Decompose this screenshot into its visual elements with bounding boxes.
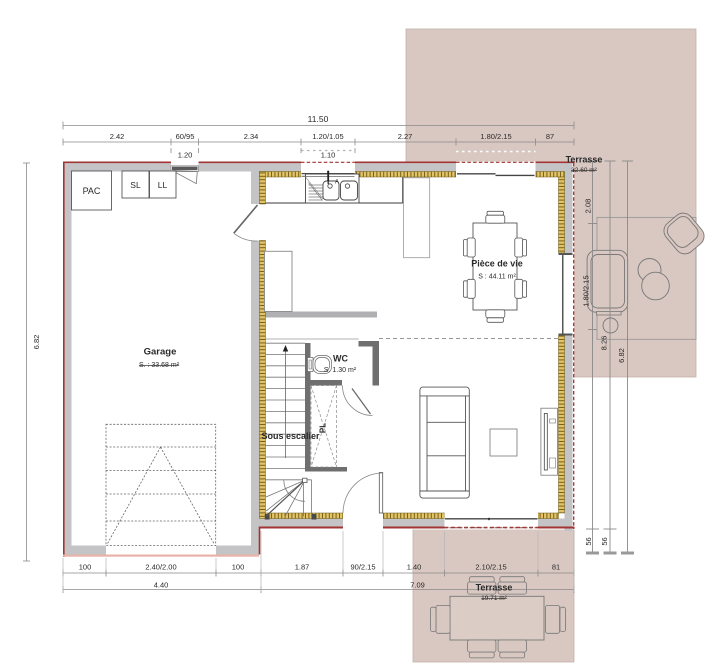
- svg-text:60/95: 60/95: [176, 132, 195, 141]
- svg-text:S : 44.11 m²: S : 44.11 m²: [478, 274, 516, 281]
- svg-text:7.09: 7.09: [410, 581, 425, 590]
- svg-text:Sous escalier: Sous escalier: [261, 431, 320, 441]
- svg-text:2.34: 2.34: [244, 132, 259, 141]
- svg-text:81: 81: [552, 563, 560, 572]
- svg-text:1.80/2.15: 1.80/2.15: [582, 275, 591, 306]
- svg-text:WC: WC: [333, 354, 348, 364]
- svg-text:4.40: 4.40: [154, 581, 169, 590]
- svg-text:Terrasse: Terrasse: [476, 583, 513, 593]
- svg-text:19.71 m²: 19.71 m²: [481, 595, 507, 602]
- svg-text:2.42: 2.42: [110, 132, 125, 141]
- svg-text:1.40: 1.40: [407, 563, 422, 572]
- svg-text:1.20: 1.20: [178, 151, 193, 160]
- svg-text:PL: PL: [319, 423, 328, 433]
- svg-text:6.82: 6.82: [32, 335, 41, 350]
- svg-text:90/2.15: 90/2.15: [350, 563, 375, 572]
- svg-text:2.27: 2.27: [398, 132, 413, 141]
- svg-text:SL: SL: [130, 180, 141, 190]
- svg-text:2.10/2.15: 2.10/2.15: [475, 563, 506, 572]
- svg-text:6.82: 6.82: [617, 348, 626, 363]
- svg-text:1.87: 1.87: [295, 563, 310, 572]
- svg-text:8.26: 8.26: [600, 336, 609, 351]
- svg-text:2.40/2.00: 2.40/2.00: [145, 563, 176, 572]
- svg-text:Pièce de vie: Pièce de vie: [471, 259, 523, 269]
- svg-text:LL: LL: [158, 180, 168, 190]
- svg-text:1.20/1.05: 1.20/1.05: [312, 132, 343, 141]
- svg-text:S. 1.30 m²: S. 1.30 m²: [324, 367, 357, 374]
- svg-text:56: 56: [584, 537, 593, 545]
- svg-text:1.10: 1.10: [321, 151, 336, 160]
- svg-text:Garage: Garage: [144, 347, 177, 358]
- svg-text:A: A: [335, 180, 339, 186]
- svg-text:PAC: PAC: [83, 186, 101, 196]
- svg-text:1.80/2.15: 1.80/2.15: [480, 132, 511, 141]
- svg-text:100: 100: [232, 563, 245, 572]
- svg-text:Terrasse: Terrasse: [566, 155, 603, 165]
- svg-text:87: 87: [546, 132, 554, 141]
- svg-text:11.50: 11.50: [308, 114, 329, 124]
- svg-text:S. : 33.68 m²: S. : 33.68 m²: [139, 362, 180, 369]
- svg-text:32.60 m²: 32.60 m²: [571, 167, 597, 174]
- svg-text:56: 56: [600, 537, 609, 545]
- svg-text:2.08: 2.08: [584, 199, 593, 214]
- svg-text:100: 100: [79, 563, 92, 572]
